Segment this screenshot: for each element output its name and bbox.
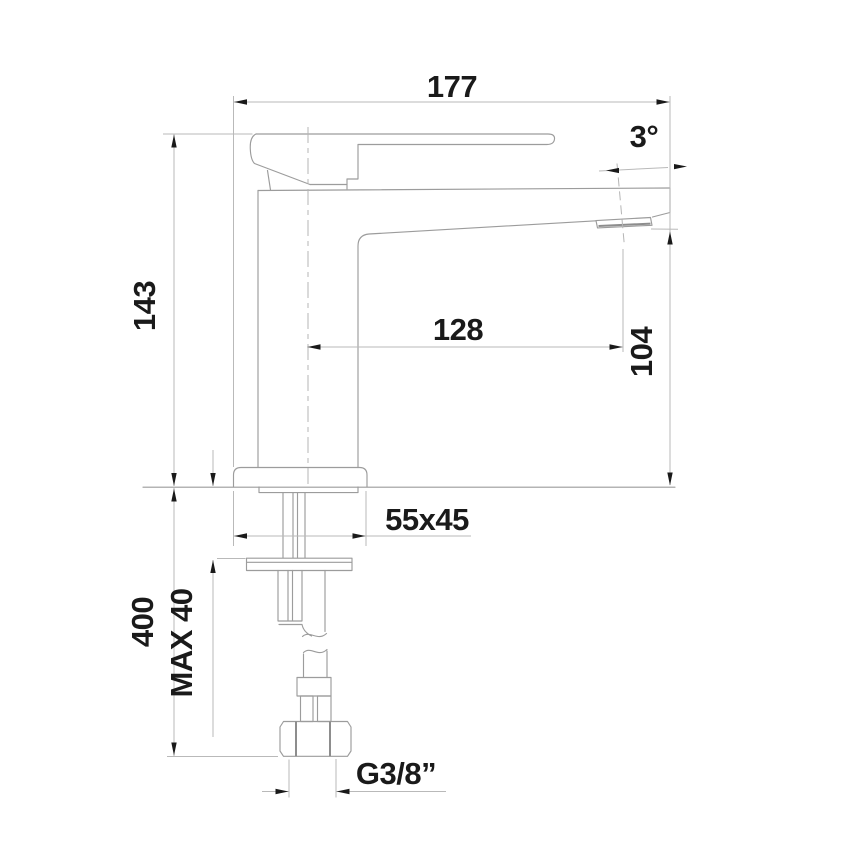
hose-upper-outline: [302, 571, 325, 637]
hex-nut-facet-lines: [296, 722, 330, 757]
dim-label-max-counter-thickness: MAX 40: [164, 589, 199, 698]
threaded-stud-outline: [278, 571, 302, 625]
arrowhead: [674, 164, 687, 169]
dim-label-spout-angle: 3°: [630, 119, 659, 154]
axis-lines: [308, 127, 625, 487]
technical-drawing-page: 177 3° 143 128 104 55x45 400 MAX 40 G3/8…: [0, 0, 868, 868]
arrowhead: [210, 473, 215, 486]
handle-skirt-line: [268, 171, 271, 191]
base-gasket-outline: [259, 487, 358, 493]
faucet-outline: [143, 134, 675, 756]
spout-top-edge: [258, 188, 670, 191]
dim-label-connection-thread: G3/8”: [356, 756, 436, 791]
arrowhead: [353, 533, 366, 538]
arrowhead: [667, 473, 672, 486]
arrowhead: [667, 232, 672, 245]
hex-nut-outline: [280, 722, 351, 757]
dim-label-height: 143: [127, 281, 162, 331]
hose-tails-outline: [301, 696, 332, 722]
dim-label-spout-outlet-height: 104: [624, 326, 659, 377]
dim-label-base-footprint: 55x45: [385, 502, 469, 537]
shank-lines: [283, 493, 305, 558]
arrowhead: [210, 560, 215, 573]
arrowhead: [337, 789, 350, 794]
arrowhead: [171, 473, 176, 486]
arrowhead: [610, 344, 623, 349]
arrowhead: [234, 533, 247, 538]
handle-back-outline: [250, 134, 310, 185]
arrowhead: [276, 789, 289, 794]
arrowhead: [234, 99, 247, 104]
arrowhead: [171, 489, 176, 502]
technical-drawing-canvas: 177 3° 143 128 104 55x45 400 MAX 40 G3/8…: [0, 0, 868, 868]
arrowhead: [171, 135, 176, 148]
spout-tip-face: [653, 188, 671, 217]
hose-break-lines: [303, 634, 328, 653]
arrowhead: [308, 344, 321, 349]
outlet-axis-line: [617, 164, 625, 248]
arrowhead: [606, 168, 619, 173]
dimension-labels: 177 3° 143 128 104 55x45 400 MAX 40 G3/8…: [125, 69, 659, 791]
dim-label-spout-reach: 128: [433, 312, 483, 347]
dim-label-under-counter-length: 400: [125, 597, 160, 647]
base-plate-outline: [234, 468, 368, 488]
arrowhead: [657, 99, 670, 104]
hose-lower-outline: [304, 651, 328, 677]
arrowhead: [171, 743, 176, 756]
dim-label-overall-length: 177: [427, 69, 477, 104]
dimension-lines: [163, 96, 687, 798]
mounting-washer-outline: [247, 558, 353, 570]
hose-ferrule-outline: [297, 678, 331, 697]
